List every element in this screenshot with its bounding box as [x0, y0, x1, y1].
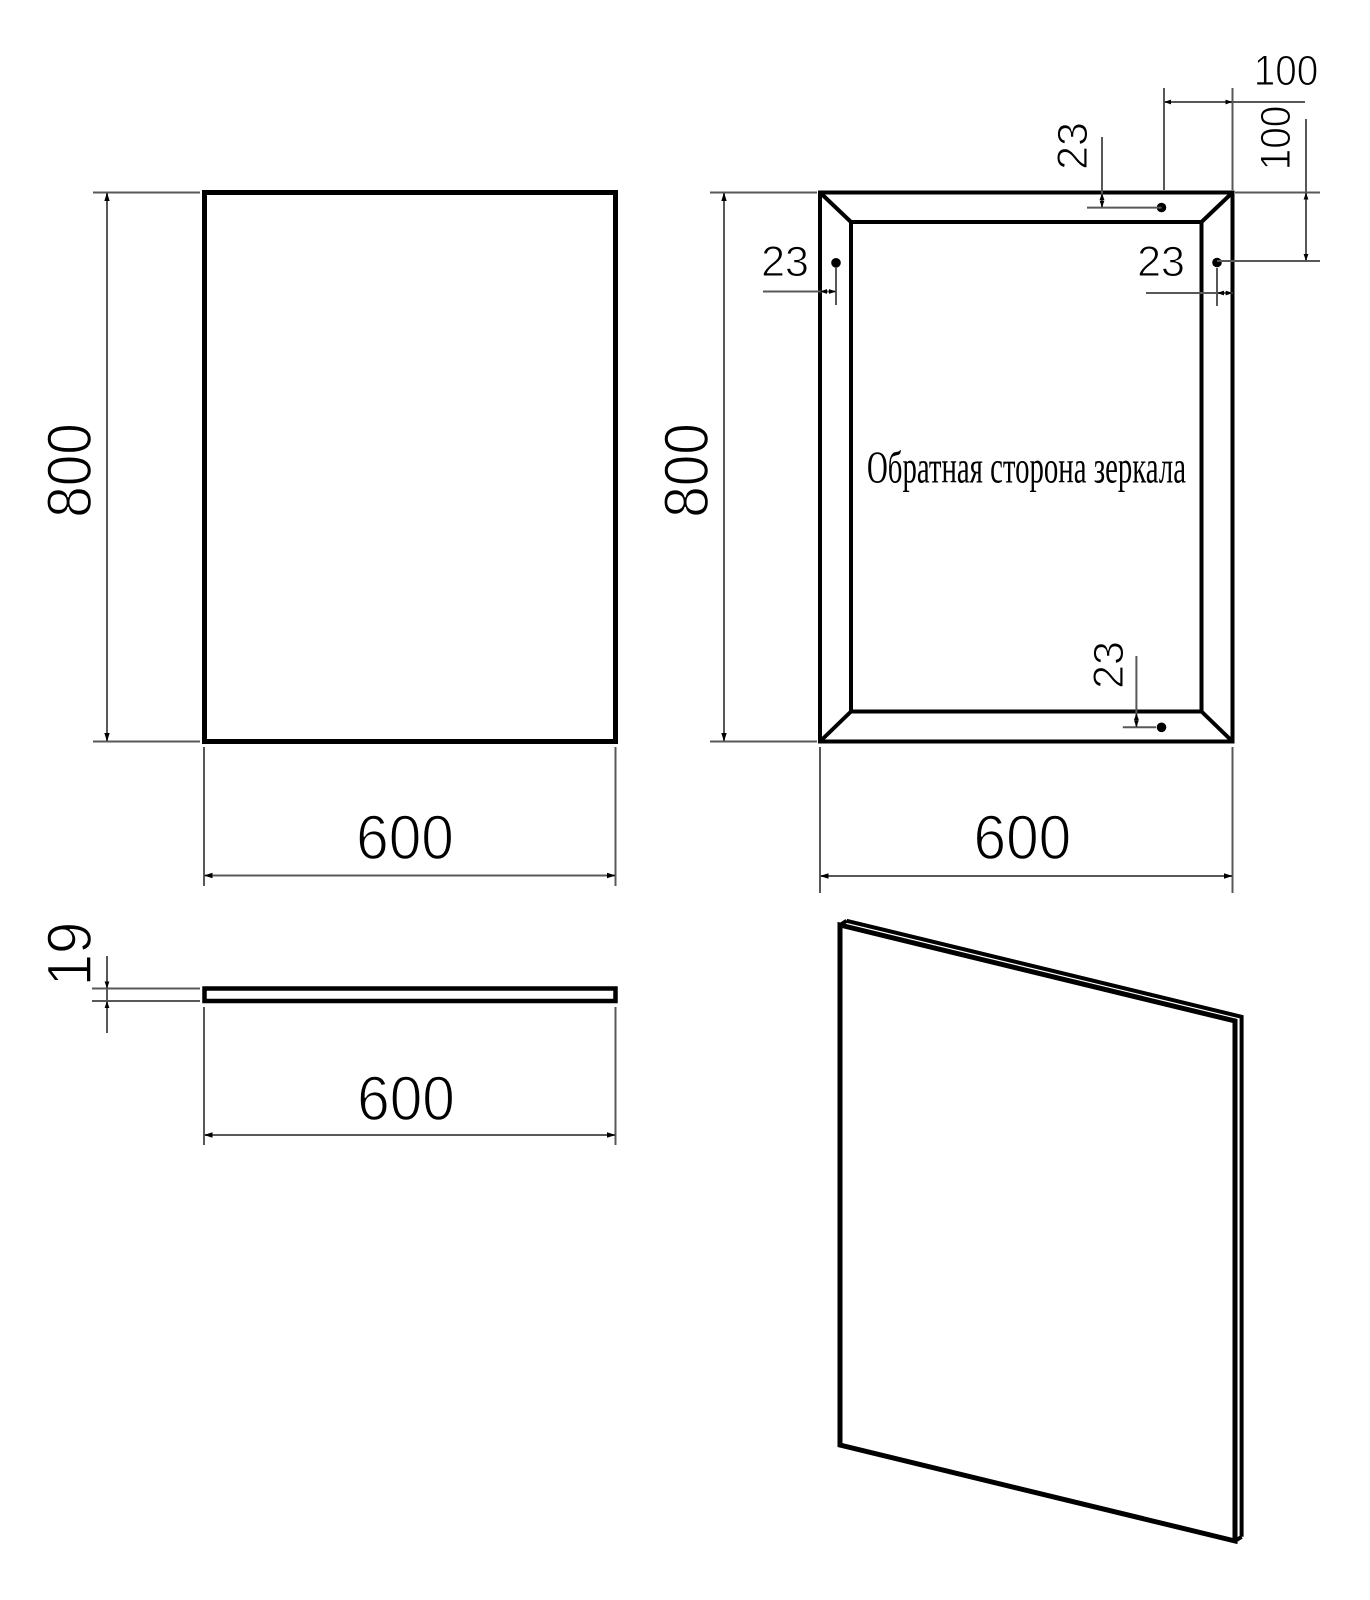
svg-text:23: 23	[1085, 641, 1133, 689]
svg-text:800: 800	[34, 423, 104, 518]
svg-text:600: 600	[356, 802, 454, 872]
svg-text:19: 19	[34, 922, 105, 986]
svg-text:23: 23	[1137, 238, 1185, 286]
svg-text:23: 23	[761, 238, 809, 286]
svg-text:100: 100	[1251, 106, 1299, 171]
svg-text:23: 23	[1049, 122, 1097, 170]
svg-text:Обратная сторона зеркала: Обратная сторона зеркала	[867, 443, 1186, 493]
svg-text:100: 100	[1254, 46, 1319, 94]
svg-text:600: 600	[357, 1063, 455, 1133]
svg-text:800: 800	[651, 423, 721, 518]
svg-text:600: 600	[974, 802, 1072, 872]
